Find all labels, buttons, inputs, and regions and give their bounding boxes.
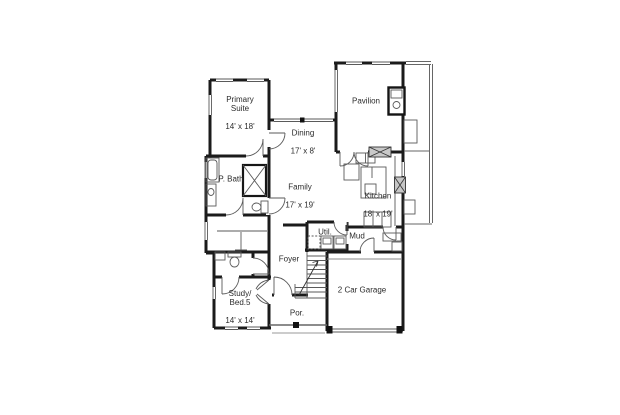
powder-toilet — [228, 252, 241, 267]
bathtub — [206, 158, 219, 182]
pass-through-window — [369, 147, 391, 157]
strip-counter-2 — [404, 200, 415, 214]
closet-rod — [217, 231, 267, 250]
room-label-foyer: Foyer — [279, 246, 299, 273]
refrigerator — [344, 164, 359, 180]
shower — [243, 165, 266, 196]
outdoor-grill — [389, 88, 405, 115]
bath-toilet — [252, 201, 268, 213]
room-label-porch: Por. — [290, 300, 304, 327]
garage-door — [327, 326, 403, 334]
room-label-util: Util. — [318, 219, 332, 246]
staircase — [295, 252, 327, 298]
floor-plan-canvas: Primary Suite 14' x 18' P. Bath Dining 1… — [0, 0, 620, 415]
room-label-kitchen: Kitchen 18' x 19' — [363, 183, 392, 228]
range — [395, 177, 406, 193]
room-label-pavilion: Pavilion — [352, 88, 380, 115]
room-label-p-bath: P. Bath — [218, 166, 243, 193]
room-label-family: Family 17' x 19' — [285, 174, 314, 219]
room-label-primary-suite: Primary Suite 14' x 18' — [225, 86, 254, 140]
room-label-dining: Dining 17' x 8' — [291, 120, 316, 165]
room-label-mud: Mud — [349, 223, 365, 250]
room-label-study-bed5: Study/ Bed.5 14' x 14' — [225, 280, 254, 334]
strip-counter-1 — [404, 120, 417, 143]
room-label-garage: 2 Car Garage — [338, 277, 386, 304]
